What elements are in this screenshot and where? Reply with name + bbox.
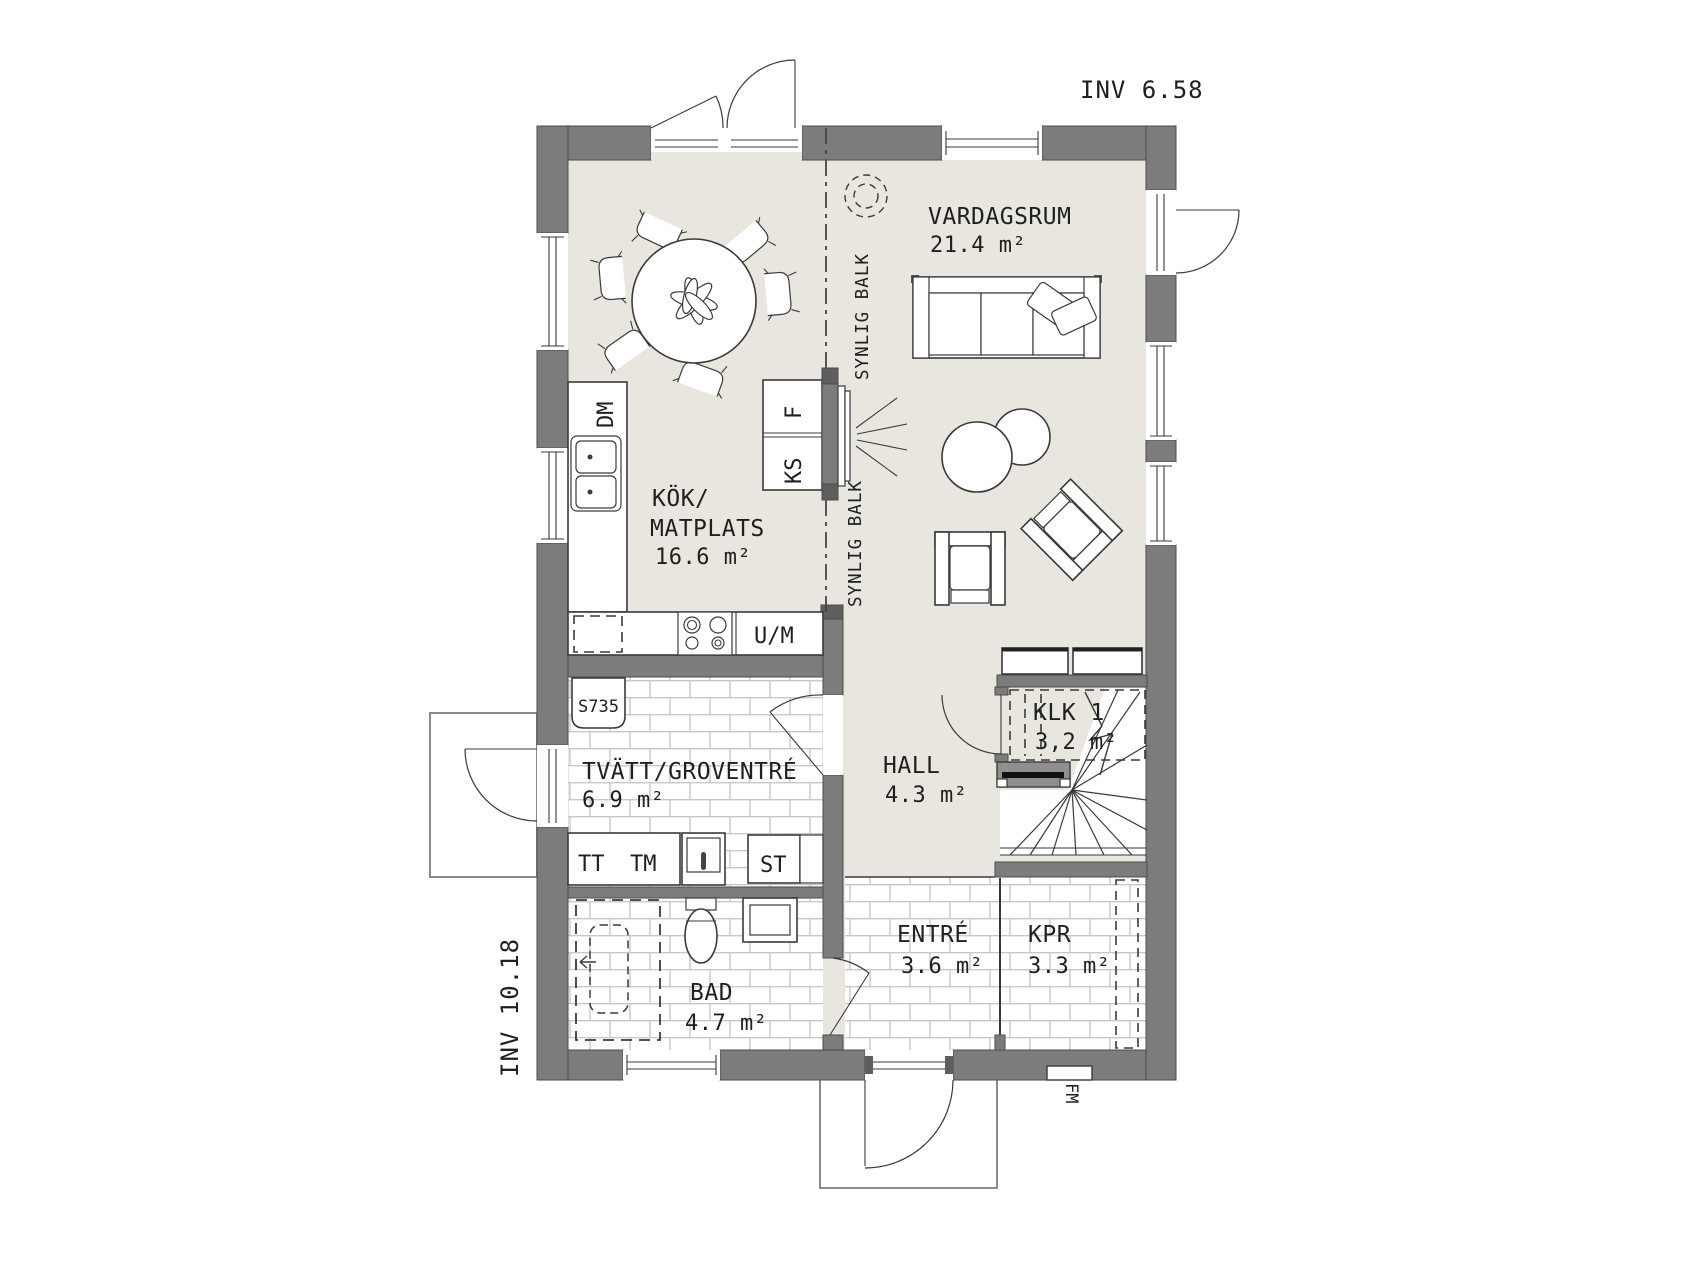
window-top	[942, 126, 1042, 160]
entre-kpr-divider-stub	[995, 1035, 1005, 1050]
faucet-icon	[701, 852, 706, 870]
wall-top-2	[802, 126, 942, 160]
wall-kitchen-tvatt	[568, 655, 823, 677]
wall-hall-west-mid	[823, 775, 843, 958]
fireplace-panel-front	[845, 391, 850, 481]
wall-hall-west-upper	[823, 612, 843, 695]
label-kpr: KPR	[1028, 922, 1071, 948]
dimension-top: INV 6.58	[1080, 76, 1204, 104]
wall-bad-door-stub	[823, 1035, 843, 1050]
floor-plan-page: VARDAGSRUM 21.4 m² KÖK/ MATPLATS 16.6 m²…	[0, 0, 1707, 1280]
area-klk: 3,2 m²	[1035, 730, 1117, 755]
label-um: U/M	[754, 624, 794, 649]
area-entre: 3.6 m²	[901, 954, 983, 979]
window-right-upper	[1146, 342, 1176, 440]
window-left-upper	[537, 233, 568, 350]
laundry-sink	[682, 833, 725, 885]
wall-left-2	[537, 350, 568, 448]
door-left-groventre	[465, 745, 568, 827]
label-s735: S735	[578, 697, 619, 717]
label-kok-line2: MATPLATS	[650, 516, 765, 542]
label-kok-line1: KÖK/	[652, 484, 709, 512]
wall-cap-kitchen	[821, 605, 843, 619]
area-kpr: 3.3 m²	[1028, 954, 1110, 979]
stove	[678, 612, 732, 655]
wall-bottom-2	[720, 1050, 865, 1080]
label-synlig-balk-lower: SYNLIG BALK	[846, 480, 866, 607]
wall-left-1	[537, 126, 568, 233]
wall-left-4	[537, 827, 568, 1080]
wall-stairs-north	[997, 675, 1147, 687]
entry-door-jamb-left	[865, 1056, 873, 1074]
coffee-table-large	[942, 422, 1012, 492]
label-f: F	[782, 406, 807, 419]
wall-tvatt-bad	[568, 887, 823, 898]
wall-right-mullion	[1146, 440, 1176, 462]
sofa	[911, 275, 1102, 358]
cabinet-filler	[800, 835, 823, 883]
toilet	[685, 898, 717, 963]
wall-left-3	[537, 543, 568, 745]
wall-stairs-south	[995, 862, 1147, 877]
wall-right-1	[1146, 126, 1176, 190]
label-ks: KS	[782, 458, 807, 485]
area-vardagsrum: 21.4 m²	[930, 233, 1026, 258]
wall-right-3	[1146, 545, 1176, 1080]
area-tvatt: 6.9 m²	[582, 788, 664, 813]
fireplace-panel	[838, 386, 845, 486]
entry-door-jamb-right	[945, 1056, 953, 1074]
label-dm: DM	[594, 402, 619, 429]
label-tvatt: TVÄTT/GROVENTRÉ	[582, 757, 797, 785]
dimension-side: INV 10.18	[496, 938, 524, 1077]
meter-cabinet-niche	[1047, 1066, 1092, 1080]
door-main-entrance	[865, 1050, 953, 1168]
window-bottom-bad	[623, 1050, 720, 1080]
klk-door-stub-bottom	[995, 754, 1008, 762]
main-entry-landing	[820, 1077, 997, 1188]
klk-door-stub-top	[995, 687, 1008, 695]
label-tt: TT	[578, 852, 605, 877]
label-synlig-balk-upper: SYNLIG BALK	[853, 253, 873, 380]
washbasin	[743, 898, 797, 942]
label-klk: KLK 1	[1033, 700, 1105, 726]
label-hall: HALL	[883, 753, 940, 779]
armchair-south	[935, 532, 1005, 605]
area-kok: 16.6 m²	[655, 545, 751, 570]
kitchen-sink	[571, 436, 621, 511]
label-st: ST	[760, 853, 787, 878]
floor-plan-drawing: VARDAGSRUM 21.4 m² KÖK/ MATPLATS 16.6 m²…	[0, 0, 1707, 1280]
label-fm: FM	[1061, 1083, 1081, 1103]
wall-right-2	[1146, 275, 1176, 342]
label-entre: ENTRÉ	[897, 920, 969, 948]
area-bad: 4.7 m²	[685, 1011, 767, 1036]
area-hall: 4.3 m²	[885, 783, 967, 808]
french-doors-top	[651, 60, 802, 160]
side-entry-landing	[430, 713, 537, 877]
stair-handrail	[997, 762, 1070, 787]
label-tm: TM	[630, 852, 657, 877]
door-right-exterior	[1146, 190, 1239, 275]
window-right-lower	[1146, 462, 1176, 545]
window-left-lower	[537, 448, 568, 543]
label-vardagsrum: VARDAGSRUM	[928, 204, 1071, 230]
label-bad: BAD	[690, 980, 733, 1006]
